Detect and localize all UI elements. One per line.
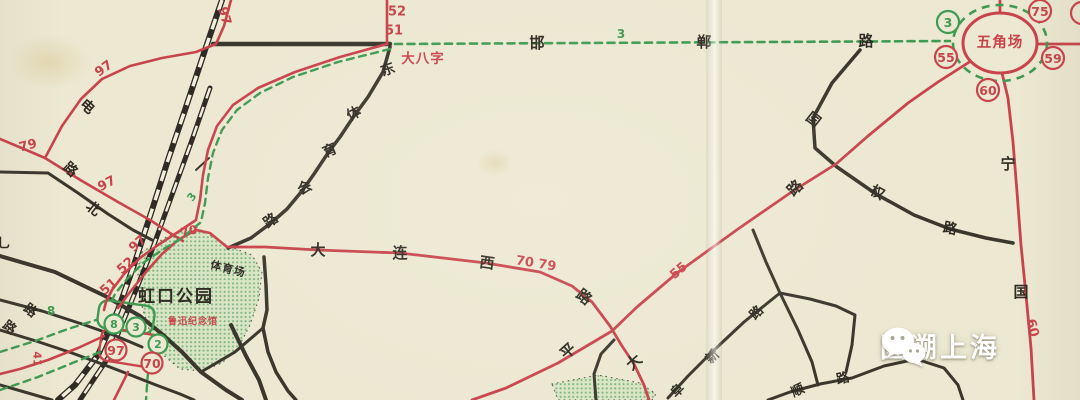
park-se-road	[231, 325, 266, 400]
route-green-s-exit	[146, 372, 148, 400]
road-name-label: 路	[858, 32, 874, 50]
guoquan-road	[813, 50, 1013, 243]
road-name-label: 郸	[696, 33, 711, 51]
road-name-label: 新	[702, 346, 723, 367]
route-badge: 75	[1029, 0, 1051, 22]
road-name-label: 邯	[529, 34, 544, 52]
route-badge-number: 3	[944, 15, 953, 30]
minor-s-curve-road	[780, 293, 855, 372]
route-number-label: 97	[92, 58, 115, 81]
east-tiyuhui-road	[228, 47, 390, 248]
route-number-label: 大八字	[401, 50, 445, 67]
route-97-north	[45, 0, 231, 158]
route-badge-number: 59	[1044, 51, 1061, 66]
route-number-label: 3	[617, 27, 625, 41]
route-60-ningguo	[1002, 73, 1034, 400]
bottom-left-road-4	[0, 385, 52, 400]
route-number-label: 41	[31, 351, 44, 366]
fuxin-road	[668, 293, 780, 398]
route-badge-number: 3	[132, 321, 140, 334]
route-number-label: 97	[214, 5, 233, 27]
road-name-label: 宁	[1000, 155, 1015, 173]
road-name-label: 西	[478, 253, 495, 273]
route-badge-number: 75	[1031, 4, 1048, 19]
route-badge-number: 60	[979, 83, 997, 98]
route-badge: 60	[977, 79, 999, 101]
route-badge-number: 2	[154, 338, 162, 351]
wechat-icon	[880, 326, 928, 368]
route-number-label: 3	[184, 190, 199, 204]
watermark: 图溯上海	[880, 326, 1000, 365]
road-name-label: 顺	[789, 381, 807, 400]
road-name-label: 虹口公园	[138, 287, 214, 307]
road-name-label: 路	[20, 300, 41, 321]
road-name-label: 大	[310, 241, 325, 259]
ouyang-road	[263, 257, 296, 400]
route-dalian-west	[227, 247, 649, 400]
route-badge-number: 8	[110, 318, 118, 331]
route-badge: 3	[127, 318, 146, 337]
route-number-label: 70 79	[515, 253, 558, 274]
route-badge-number: 70	[143, 356, 161, 371]
route-s-exit-red	[114, 372, 128, 400]
route-badge	[1071, 2, 1080, 24]
bei-road	[0, 172, 152, 240]
route-badge: 97	[106, 340, 127, 361]
road-name-label: 国	[1013, 283, 1028, 301]
route-badge-ring	[1071, 2, 1080, 24]
route-badge-number: 97	[107, 343, 124, 358]
route-number-label: 8	[47, 304, 55, 318]
route-badge: 59	[1042, 47, 1064, 69]
road-name-label: 路	[835, 369, 852, 388]
road-name-label: 乚	[0, 237, 11, 252]
route-badge: 3	[937, 11, 959, 33]
route-badge: 8	[105, 315, 124, 334]
route-badge: 55	[935, 46, 957, 68]
road-name-label: 连	[392, 244, 408, 262]
route-badge: 2	[149, 335, 168, 354]
route-number-label: 60	[1023, 317, 1042, 338]
route-badge-number: 55	[937, 50, 954, 65]
road-name-label: 路	[941, 219, 959, 239]
route-badge: 70	[142, 353, 163, 374]
roundabout-label: 五角场	[977, 33, 1024, 51]
road-name-label: 北	[83, 198, 104, 219]
route-number-label: 52	[388, 5, 406, 20]
road-name-label: 国	[803, 109, 824, 130]
route-number-label: 鲁迅纪念馆	[168, 315, 218, 327]
map-canvas[interactable]: 五角场3755559608329770邯郸路东体育会路大连西路大平路国权路宁国阜…	[0, 0, 1080, 400]
route-number-label: 51	[385, 24, 403, 39]
road-name-label: 平	[556, 339, 579, 362]
